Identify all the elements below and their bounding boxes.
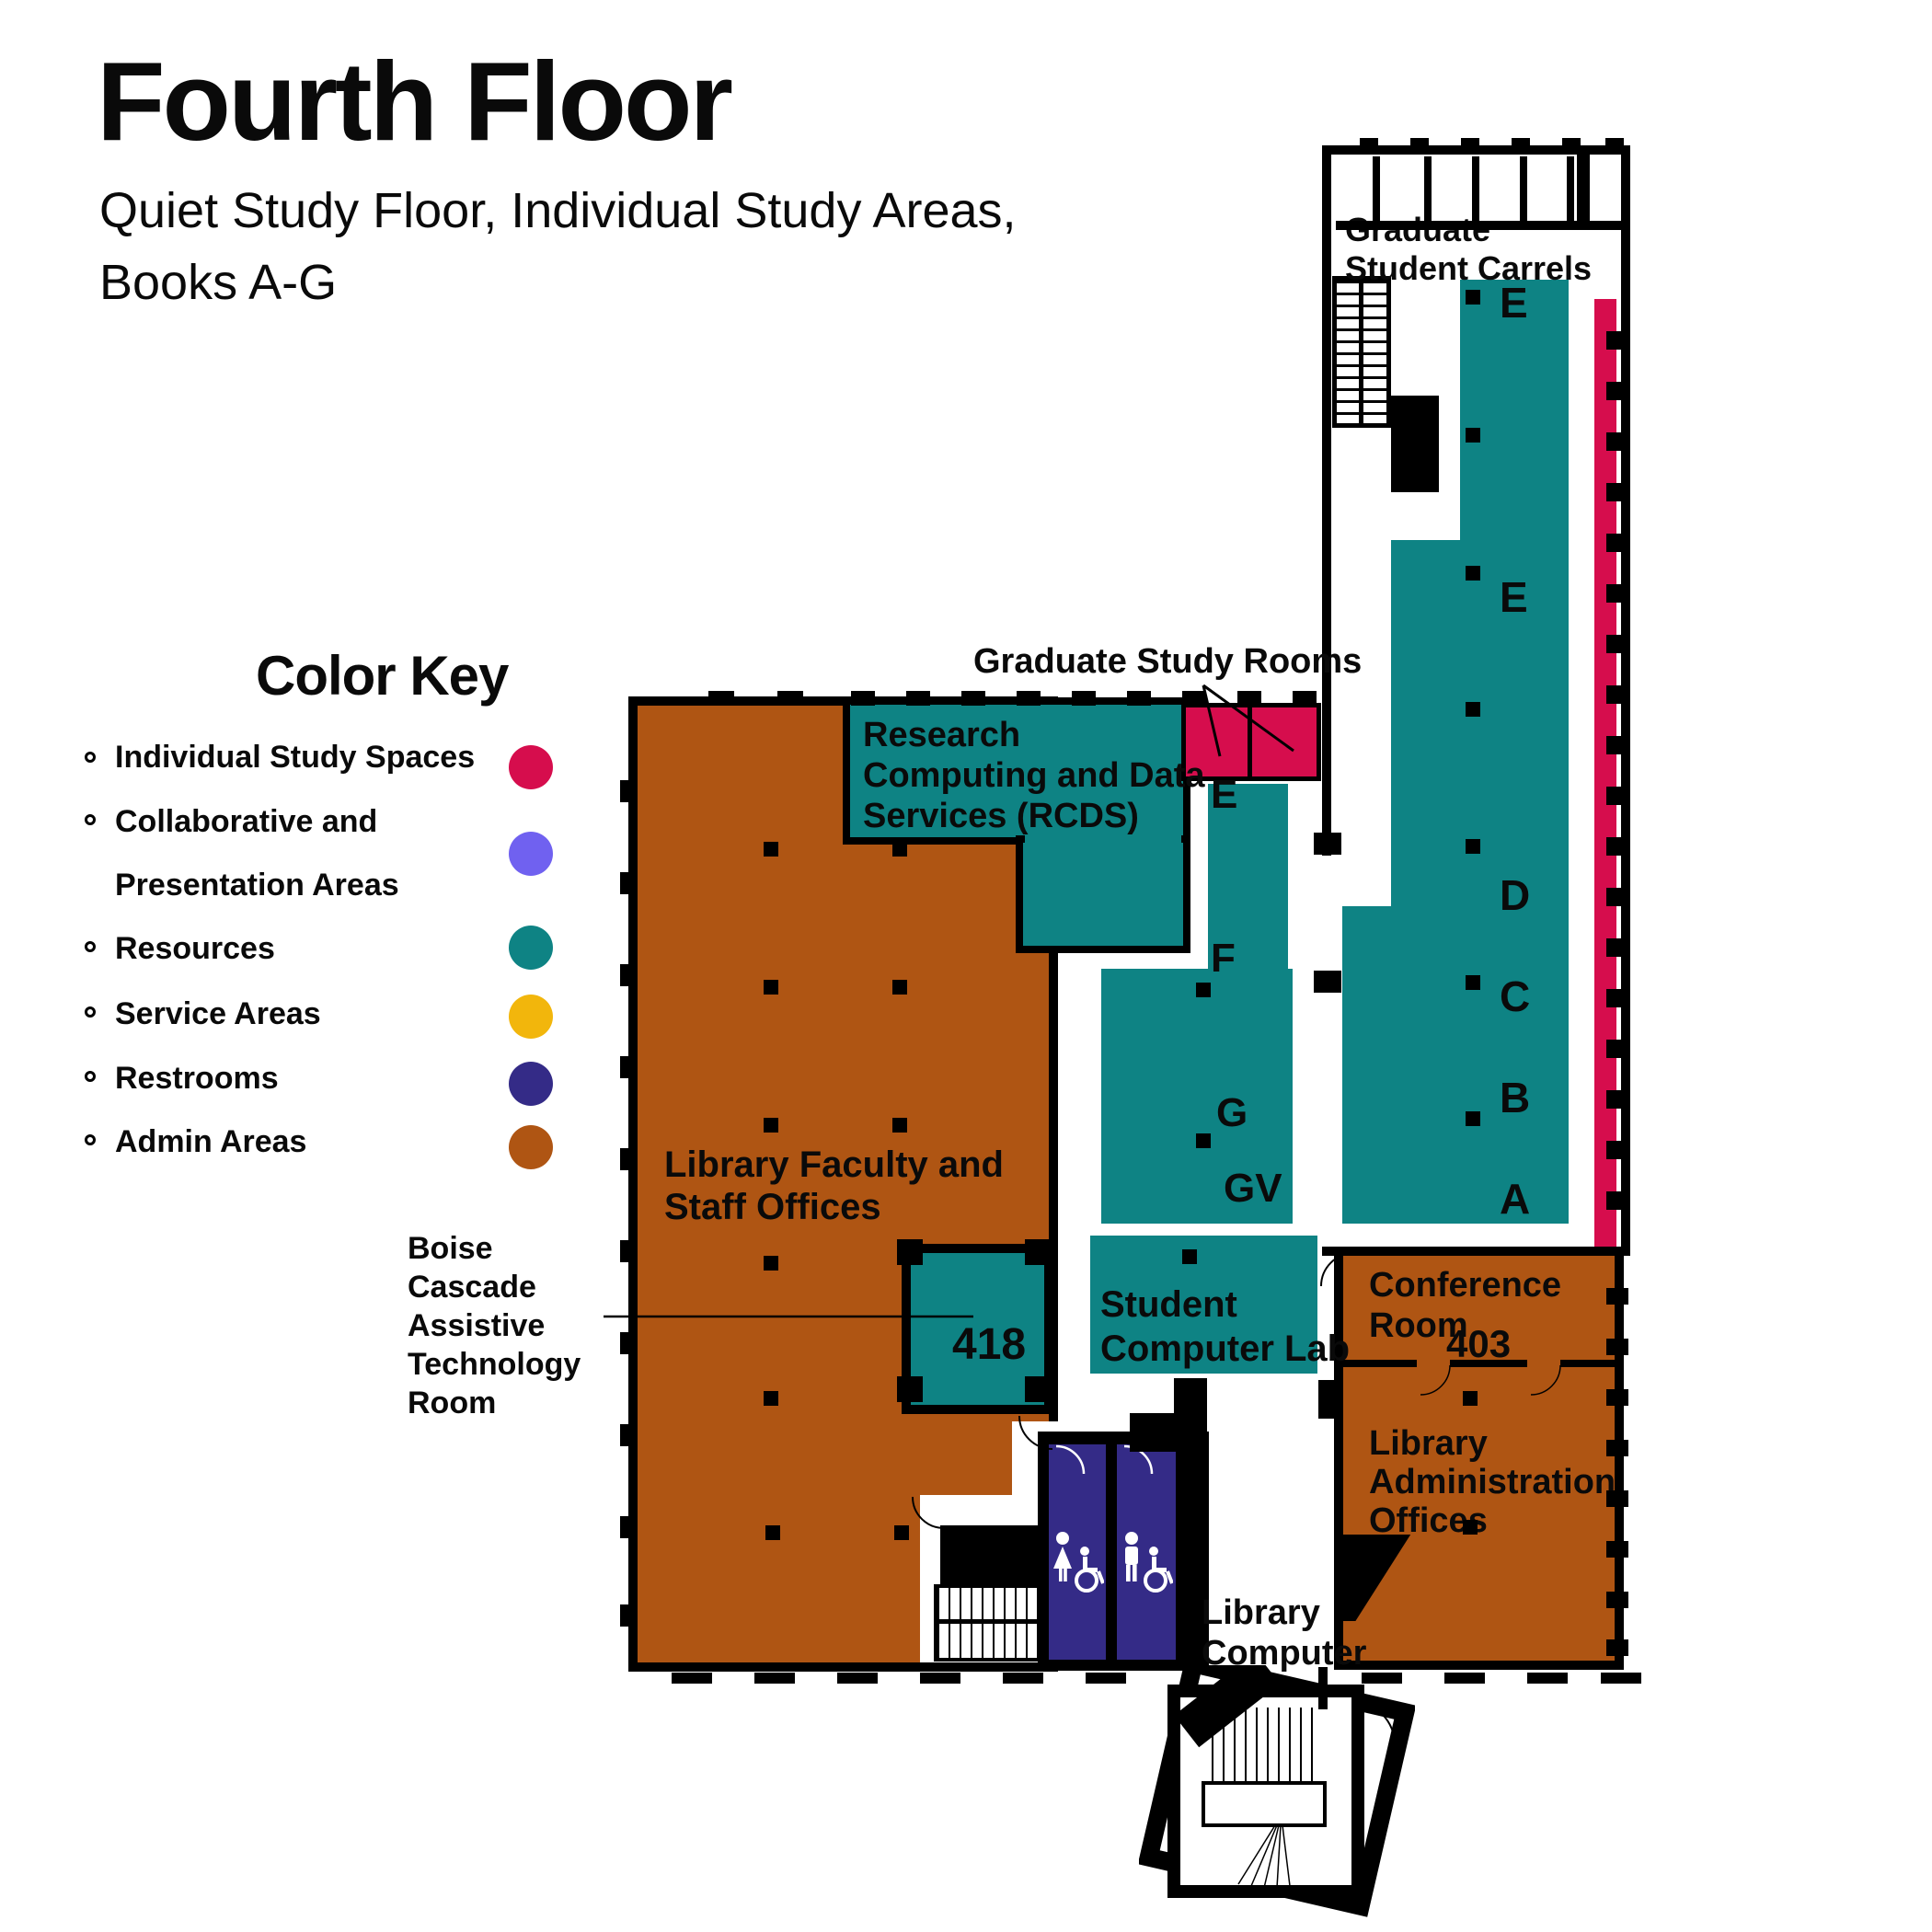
label-admin-2: Administration <box>1369 1465 1616 1500</box>
carrel-partition-thick <box>1577 150 1590 225</box>
wall-pillar <box>1606 382 1628 400</box>
wall-dash <box>1362 1673 1402 1684</box>
label-lab-1: Student <box>1100 1286 1237 1323</box>
wall-tick <box>851 691 875 706</box>
corridor-wall <box>1174 1378 1207 1439</box>
elevator-block <box>1391 396 1439 492</box>
column-dot <box>1466 1111 1480 1126</box>
wall-tick <box>1017 691 1041 706</box>
wall-pillar <box>1606 331 1628 350</box>
label-faculty-1: Library Faculty and <box>664 1146 1004 1183</box>
stairs-south-exit <box>1139 1665 1415 1918</box>
label-rcds-3: Services (RCDS) <box>863 799 1139 834</box>
wall-dash <box>1086 1673 1126 1684</box>
stacks-tower-wide <box>1342 906 1569 1224</box>
stack-letter-g: G <box>1216 1093 1248 1133</box>
graduate-study-divider <box>1248 703 1252 781</box>
legend-label-collaborative-2: Presentation Areas <box>115 869 399 901</box>
wall-pillar <box>1606 1339 1628 1355</box>
wall-pillar <box>1606 432 1628 451</box>
column-dot <box>894 1525 909 1540</box>
stack-letter-e1: E <box>1500 282 1528 324</box>
legend-bullet <box>85 752 96 763</box>
wall-stub <box>1318 1667 1328 1709</box>
column-dot <box>1463 1391 1478 1406</box>
legend-label-individual-study: Individual Study Spaces <box>115 742 475 773</box>
wall-tick <box>1237 691 1261 706</box>
stack-letter-e2: E <box>1500 576 1528 618</box>
carrel-inner-wall <box>1336 221 1626 230</box>
wall-pillar <box>1606 1141 1628 1159</box>
column-dot <box>1466 566 1480 581</box>
legend-bullet <box>85 941 96 952</box>
column-dot <box>1182 1249 1197 1264</box>
label-library-computer-1: Library <box>1202 1595 1320 1630</box>
column-dot <box>892 1118 907 1133</box>
wall-pillar <box>1606 534 1628 552</box>
callout-line: Cascade <box>408 1271 536 1303</box>
legend-bullet <box>85 1006 96 1018</box>
wall-tick <box>906 691 930 706</box>
service-shaft <box>940 1525 1044 1584</box>
label-rcds-2: Computing and Data <box>863 758 1205 793</box>
label-lab-2: Computer Lab <box>1100 1330 1350 1367</box>
label-conference-1: Conference <box>1369 1268 1561 1303</box>
wall-tick <box>1293 691 1317 706</box>
wall-pillar <box>620 1056 637 1078</box>
wall-pillar <box>1606 584 1628 603</box>
label-rcds-1: Research <box>863 718 1020 753</box>
wall-pillar <box>620 1424 637 1446</box>
wall-dash <box>837 1673 878 1684</box>
legend-swatch-collaborative <box>509 832 553 876</box>
label-graduate-study-rooms: Graduate Study Rooms <box>973 644 1362 679</box>
legend-bullet <box>85 814 96 825</box>
wall-pillar <box>620 1516 637 1538</box>
wall-tick <box>1072 691 1096 706</box>
wall-dash <box>1444 1673 1485 1684</box>
wall-tick <box>1360 138 1378 151</box>
column-dot <box>764 1256 778 1271</box>
callout-line: Technology <box>408 1349 581 1380</box>
wall-pillar <box>620 1240 637 1262</box>
legend-swatch-resources <box>509 926 553 970</box>
wall-pillar <box>1606 837 1628 856</box>
wall-pillar <box>620 1604 637 1627</box>
column-dot <box>1196 983 1211 997</box>
column-dot <box>764 980 778 995</box>
wall-pillar <box>620 872 637 894</box>
label-admin-1: Library <box>1369 1426 1488 1461</box>
page-title: Fourth Floor <box>97 37 730 166</box>
wall-tick <box>1410 138 1429 151</box>
label-faculty-2: Staff Offices <box>664 1189 881 1225</box>
stack-letter-c: C <box>1500 975 1530 1018</box>
wall-pillar <box>620 1148 637 1170</box>
female-wheelchair-icon <box>1051 1531 1104 1599</box>
room-corner-pillar <box>1025 1376 1051 1402</box>
wall-dash <box>1527 1673 1568 1684</box>
room-rcds-extension <box>1016 835 1190 953</box>
carrel-partition <box>1567 156 1574 224</box>
wall-pillar <box>1606 1440 1628 1456</box>
wall-tick <box>1127 691 1151 706</box>
page-subtitle: Quiet Study Floor, Individual Study Area… <box>99 175 1017 319</box>
wall-pillar <box>1606 1040 1628 1058</box>
stack-letter-a: A <box>1500 1178 1530 1220</box>
wall-pillar <box>1318 1380 1342 1419</box>
callout-line: Boise <box>408 1233 493 1264</box>
stack-letter-f: F <box>1211 938 1236 979</box>
room-corner-pillar <box>897 1376 923 1402</box>
wall-pillar <box>1606 787 1628 805</box>
wall-pillar <box>1606 685 1628 704</box>
legend-label-collaborative-1: Collaborative and <box>115 806 377 837</box>
column-dot <box>1196 1133 1211 1148</box>
carrel-partition <box>1373 156 1380 224</box>
wall-pillar <box>1606 736 1628 754</box>
wall-pillar <box>1606 888 1628 906</box>
column-dot <box>765 1525 780 1540</box>
wall-pillar <box>1606 1191 1628 1210</box>
wall-pillar <box>1606 483 1628 501</box>
wall-pillar <box>1606 1288 1628 1305</box>
column-dot <box>764 1391 778 1406</box>
wall-pillar <box>1606 938 1628 957</box>
wall-dash <box>920 1673 960 1684</box>
legend-label-restrooms: Restrooms <box>115 1063 279 1094</box>
carrel-partition <box>1472 156 1479 224</box>
legend-swatch-admin <box>509 1125 553 1169</box>
stack-letter-gv: GV <box>1224 1168 1282 1209</box>
wall-dash <box>1003 1673 1043 1684</box>
wall-tick <box>1562 138 1581 151</box>
stairs-rail <box>934 1619 1044 1624</box>
label-conference-403: 403 <box>1446 1325 1511 1363</box>
legend-bullet <box>85 1071 96 1082</box>
column-dot <box>1463 1520 1478 1535</box>
label-carrels-1: Graduate <box>1345 213 1490 247</box>
wall-pillar <box>620 780 637 802</box>
wall-pillar <box>1189 1516 1209 1535</box>
legend-bullet <box>85 1134 96 1145</box>
admin-inner-door-gap <box>1417 1358 1450 1369</box>
male-wheelchair-icon <box>1120 1531 1173 1599</box>
wall-dash <box>754 1673 795 1684</box>
column-dot <box>764 842 778 857</box>
column-dot <box>1466 702 1480 717</box>
callout-line: Room <box>408 1387 496 1419</box>
stack-letter-b: B <box>1500 1076 1530 1119</box>
subtitle-line-2: Books A-G <box>99 247 1017 318</box>
wall-tick <box>1182 691 1206 706</box>
floor-plan-page: Fourth Floor Quiet Study Floor, Individu… <box>0 0 1932 1932</box>
legend-label-service: Service Areas <box>115 998 321 1029</box>
stack-letter-d: D <box>1500 874 1530 916</box>
wall-pillar <box>1606 1541 1628 1558</box>
column-dot <box>1466 839 1480 854</box>
admin-inner-door-gap <box>1527 1358 1560 1369</box>
wall-dash <box>1601 1673 1641 1684</box>
corridor-wall <box>1130 1413 1176 1452</box>
wall-dash <box>672 1673 712 1684</box>
wall-tick <box>1461 138 1479 151</box>
stack-letter-e-mid: E <box>1211 775 1237 815</box>
label-carrels-2: Student Carrels <box>1345 252 1592 285</box>
wall-tick <box>961 691 985 706</box>
column-dot <box>1466 290 1480 305</box>
tower-wall-opening <box>1320 856 1335 1247</box>
wall-pillar <box>1606 1090 1628 1109</box>
column-dot <box>1466 975 1480 990</box>
column-dot <box>764 1118 778 1133</box>
column-dot <box>1466 428 1480 443</box>
room-corner-pillar <box>897 1239 923 1265</box>
wall-pillar <box>1314 833 1341 855</box>
wall-pillar <box>1606 989 1628 1007</box>
carrel-partition <box>1424 156 1432 224</box>
wall-tick <box>1605 138 1624 151</box>
carrel-partition <box>1520 156 1527 224</box>
wall-tick <box>708 691 734 706</box>
label-room-418: 418 <box>952 1323 1026 1367</box>
wall-pillar <box>1606 1592 1628 1608</box>
subtitle-line-1: Quiet Study Floor, Individual Study Area… <box>99 175 1017 247</box>
legend-swatch-restrooms <box>509 1062 553 1106</box>
legend-swatch-individual-study <box>509 745 553 789</box>
wall-pillar <box>1606 1639 1628 1656</box>
column-dot <box>892 980 907 995</box>
legend-label-resources: Resources <box>115 933 275 964</box>
legend-heading: Color Key <box>256 644 508 707</box>
legend-swatch-service <box>509 995 553 1039</box>
wall-pillar <box>1606 635 1628 653</box>
wall-pillar <box>1314 971 1341 993</box>
column-dot <box>892 842 907 857</box>
wall-pillar <box>1606 1389 1628 1406</box>
wall-pillar <box>1606 1490 1628 1507</box>
wall-pillar <box>620 964 637 986</box>
stairs-rail <box>1359 279 1363 425</box>
room-corner-pillar <box>1025 1239 1051 1265</box>
wall-pillar <box>620 1332 637 1354</box>
wall-tick <box>1512 138 1530 151</box>
legend-label-admin: Admin Areas <box>115 1126 306 1157</box>
wall-tick <box>777 691 803 706</box>
callout-line: Assistive <box>408 1310 545 1341</box>
